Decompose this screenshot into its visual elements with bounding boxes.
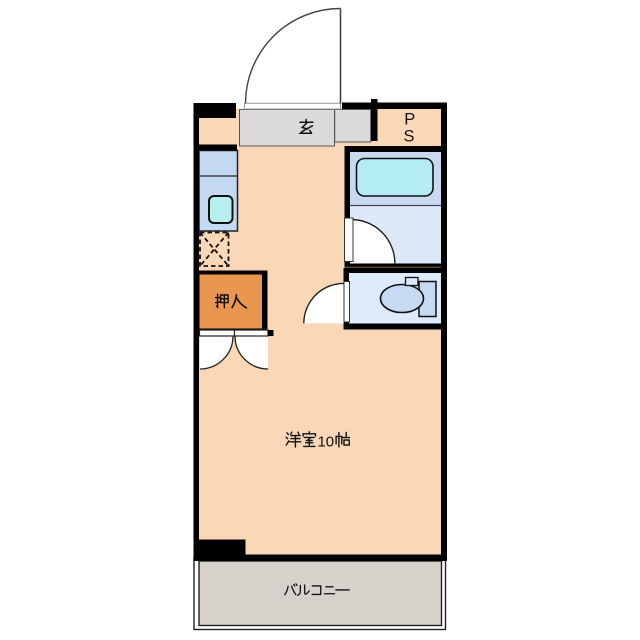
svg-text:10: 10 xyxy=(317,433,334,450)
svg-text:P: P xyxy=(404,111,415,129)
svg-text:S: S xyxy=(403,128,414,146)
